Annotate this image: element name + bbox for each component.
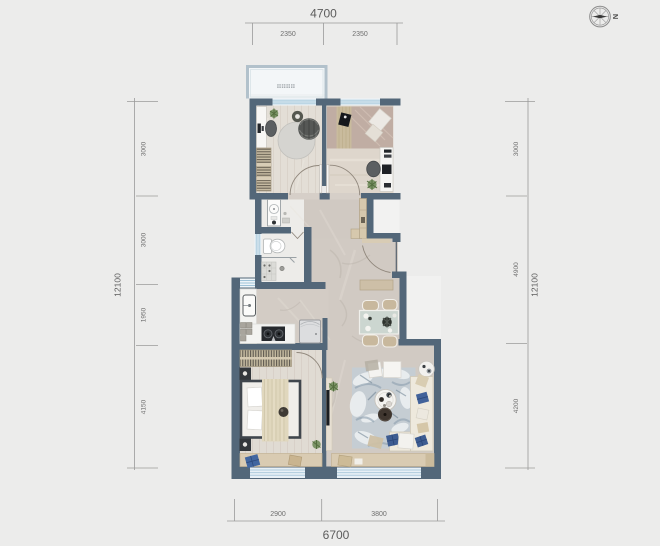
svg-text:4200: 4200 xyxy=(513,398,520,413)
svg-text:3000: 3000 xyxy=(141,232,148,247)
svg-text:3000: 3000 xyxy=(513,141,520,156)
svg-text:12100: 12100 xyxy=(530,273,540,297)
svg-text:2350: 2350 xyxy=(280,31,296,38)
svg-text:3000: 3000 xyxy=(141,141,148,156)
svg-text:1950: 1950 xyxy=(141,307,148,322)
svg-text:N: N xyxy=(611,14,620,19)
svg-text:3800: 3800 xyxy=(371,511,387,518)
svg-text:12100: 12100 xyxy=(113,273,123,297)
svg-text:2350: 2350 xyxy=(352,31,368,38)
svg-text:6700: 6700 xyxy=(323,528,350,542)
svg-text:2900: 2900 xyxy=(270,511,286,518)
svg-text:4150: 4150 xyxy=(141,399,148,414)
svg-text:4900: 4900 xyxy=(513,262,520,277)
svg-text:4700: 4700 xyxy=(310,7,337,21)
